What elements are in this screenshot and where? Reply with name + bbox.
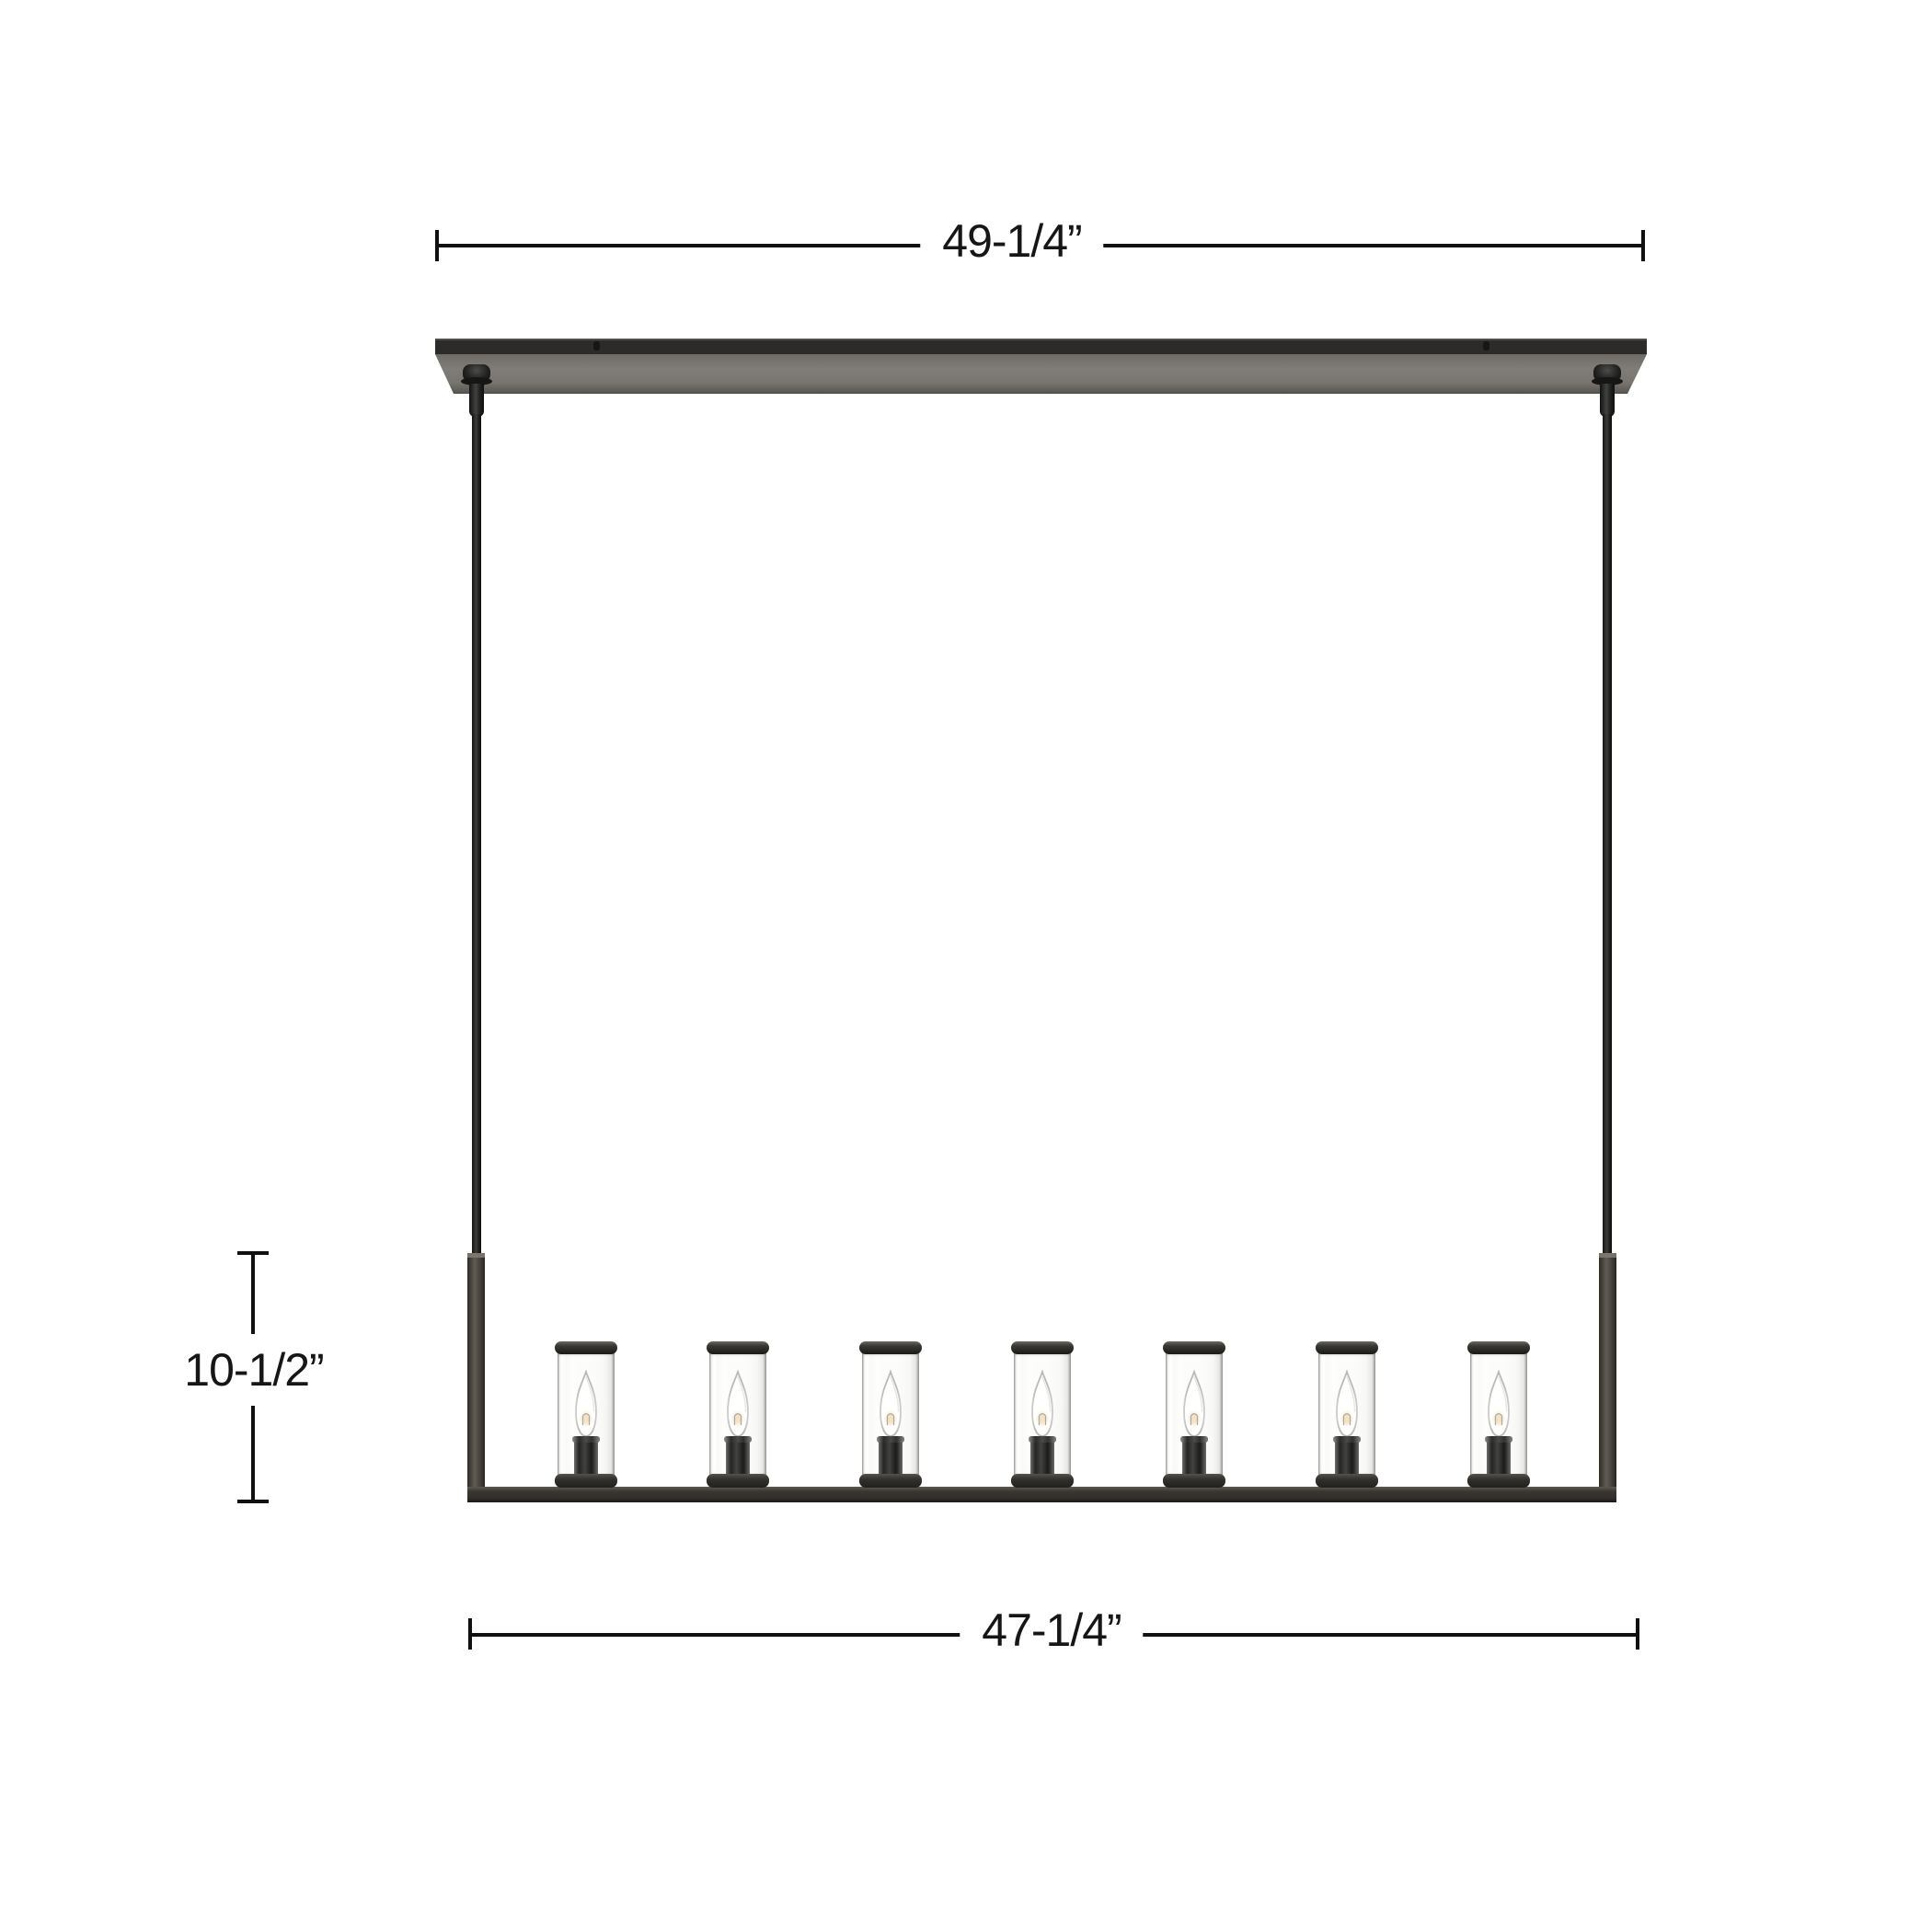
- shade-cap-ring: [707, 1341, 769, 1354]
- candelabra-bulb: [724, 1370, 752, 1440]
- stem-rod: [1603, 414, 1612, 1258]
- candelabra-bulb: [1029, 1370, 1056, 1440]
- canopy-top-edge: [435, 339, 1647, 354]
- candle-socket: [879, 1436, 903, 1478]
- shade-base-ring: [859, 1474, 922, 1488]
- shade-base-ring: [555, 1474, 617, 1488]
- candelabra-bulb: [1180, 1370, 1208, 1440]
- stem-coupler: [469, 384, 484, 417]
- canopy-screw-right: [1483, 341, 1489, 351]
- candle-light-2: [701, 1339, 775, 1506]
- candle-light-1: [549, 1339, 623, 1506]
- candle-light-6: [1310, 1339, 1384, 1506]
- shade-cap-ring: [1467, 1341, 1530, 1354]
- shade-base-ring: [1316, 1474, 1378, 1488]
- shade-cap-ring: [1011, 1341, 1074, 1354]
- candle-socket: [1182, 1436, 1206, 1478]
- dimension-label-frame-length: 47-1/4”: [960, 1602, 1143, 1659]
- stem-rod: [472, 414, 481, 1258]
- candelabra-bulb: [1333, 1370, 1361, 1440]
- product-dimension-diagram: 49-1/4”: [0, 0, 1932, 1932]
- shade-base-ring: [1163, 1474, 1225, 1488]
- candle-light-4: [1006, 1339, 1079, 1506]
- candle-socket: [726, 1436, 750, 1478]
- shade-base-ring: [707, 1474, 769, 1488]
- candle-light-7: [1462, 1339, 1535, 1506]
- candle-socket: [1487, 1436, 1511, 1478]
- frame-arm-right: [1599, 1253, 1616, 1502]
- candelabra-bulb: [877, 1370, 904, 1440]
- ceiling-canopy: [435, 339, 1647, 394]
- dimension-label-overall-length: 49-1/4”: [920, 213, 1103, 270]
- shade-cap-ring: [859, 1341, 922, 1354]
- dimension-label-body-drop: 10-1/2”: [175, 1334, 332, 1406]
- canopy-underside: [435, 354, 1647, 394]
- shade-cap-ring: [1316, 1341, 1378, 1354]
- shade-cap-ring: [1163, 1341, 1225, 1354]
- shade-base-ring: [1011, 1474, 1074, 1488]
- shade-cap-ring: [555, 1341, 617, 1354]
- candelabra-bulb: [1485, 1370, 1512, 1440]
- frame-arm-left: [467, 1253, 485, 1502]
- shade-base-ring: [1467, 1474, 1530, 1488]
- candle-socket: [1335, 1436, 1359, 1478]
- canopy-screw-left: [593, 341, 600, 351]
- candle-socket: [574, 1436, 598, 1478]
- candelabra-bulb: [572, 1370, 600, 1440]
- candle-light-5: [1157, 1339, 1231, 1506]
- stem-coupler: [1600, 384, 1615, 417]
- candle-socket: [1030, 1436, 1054, 1478]
- candle-light-3: [854, 1339, 927, 1506]
